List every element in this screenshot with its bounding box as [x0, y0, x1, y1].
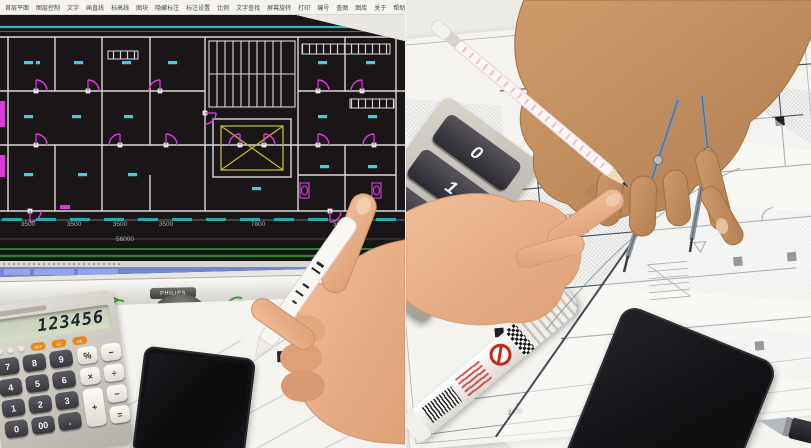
calculator-key: 9 [49, 349, 74, 369]
memory-key [7, 346, 15, 354]
blueprint-dim-2000: 2000 [559, 213, 574, 221]
cad-menu-item: 隐藏标注 [155, 3, 179, 12]
cad-menu-item: 文字查找 [236, 3, 260, 12]
calculator-key: 2 [28, 394, 53, 414]
calculator-key: 8 [22, 353, 47, 373]
cad-menu-item: 图层控制 [36, 3, 60, 12]
cad-total-dimension: 56000 [95, 236, 155, 243]
dim-label: 7800 [236, 221, 280, 228]
calculator-key: 00 [31, 415, 56, 435]
photo-collage-cad-drafting: 首层平面图层控制文字画直线标高线图块隐藏标注标注设置比例文字查找屏幕旋转打印编号… [0, 0, 811, 448]
cad-menu-item: 图库 [355, 3, 367, 12]
cad-menu-item: 首层平面 [5, 3, 29, 12]
cad-menu-item: 标高线 [111, 3, 129, 12]
cad-monitor-screen: 3500 3500 3500 3500 7800 3500 56000 [0, 15, 405, 277]
calculator-ac-key: AC [51, 339, 67, 349]
dim-label: 3500 [98, 221, 142, 228]
calculator-key: − [106, 384, 128, 404]
dim-label: 3500 [318, 221, 362, 228]
calculator-off-key: OFF [30, 341, 46, 351]
calculator-display-value: 123456 [36, 307, 106, 336]
cad-dimension-labels: 3500 3500 3500 3500 7800 3500 [0, 221, 405, 231]
left-photo-cad-workstation: 首层平面图层控制文字画直线标高线图块隐藏标注标注设置比例文字查找屏幕旋转打印编号… [0, 0, 405, 448]
dim-label: 3500 [6, 221, 50, 228]
calculator-key: 7 [0, 356, 20, 376]
calculator-key: 3 [54, 390, 79, 410]
cad-menu-item: 关于 [374, 3, 386, 12]
cad-menu-item: 画直线 [86, 3, 104, 12]
calculator-key: + [82, 387, 107, 427]
calculator-key: ÷ [103, 363, 125, 383]
cad-menu-item: 查图 [336, 3, 348, 12]
cad-menu-item: 帮助 [393, 3, 405, 12]
calculator-key: 4 [0, 377, 23, 397]
cad-menu-item: 图块 [136, 3, 148, 12]
memory-key [0, 348, 4, 356]
calculator-key: − [100, 342, 122, 362]
dim-label: 3500 [144, 221, 188, 228]
smartphone [132, 346, 256, 448]
cad-menu-item: 打印 [298, 3, 310, 12]
cad-menu-item: 编号 [317, 3, 329, 12]
right-photo-blueprint-drafting: 9000 30700 2400 2000 200 8119-2332 0147 [405, 0, 811, 448]
calculator-key: = [109, 404, 131, 424]
calculator-digit-keys: 789456123000. [0, 349, 82, 439]
dim-label: 3500 [52, 221, 96, 228]
cad-menu-item: 标注设置 [186, 3, 210, 12]
desk-calculator: 123456 OFF AC CE 789456123000. %−×÷+−= [0, 290, 134, 448]
cad-menu-item: 屏幕旋转 [267, 3, 291, 12]
red-ring-logo-icon [485, 339, 516, 370]
cad-menu-item: 文字 [67, 3, 79, 12]
memory-key [17, 345, 25, 353]
cad-menu-item: 比例 [217, 3, 229, 12]
calculator-key: 1 [1, 398, 26, 418]
calculator-key: % [76, 345, 98, 365]
calculator-key: × [79, 366, 101, 386]
calculator-key: . [57, 411, 82, 431]
cad-menubar: 首层平面图层控制文字画直线标高线图块隐藏标注标注设置比例文字查找屏幕旋转打印编号… [0, 0, 405, 15]
calculator-key: 0 [4, 419, 29, 439]
calculator-ce-key: CE [72, 336, 88, 346]
blueprint-dim-200: 200 [578, 228, 589, 236]
calculator-key: 6 [52, 370, 77, 390]
calculator-key: 5 [25, 373, 50, 393]
